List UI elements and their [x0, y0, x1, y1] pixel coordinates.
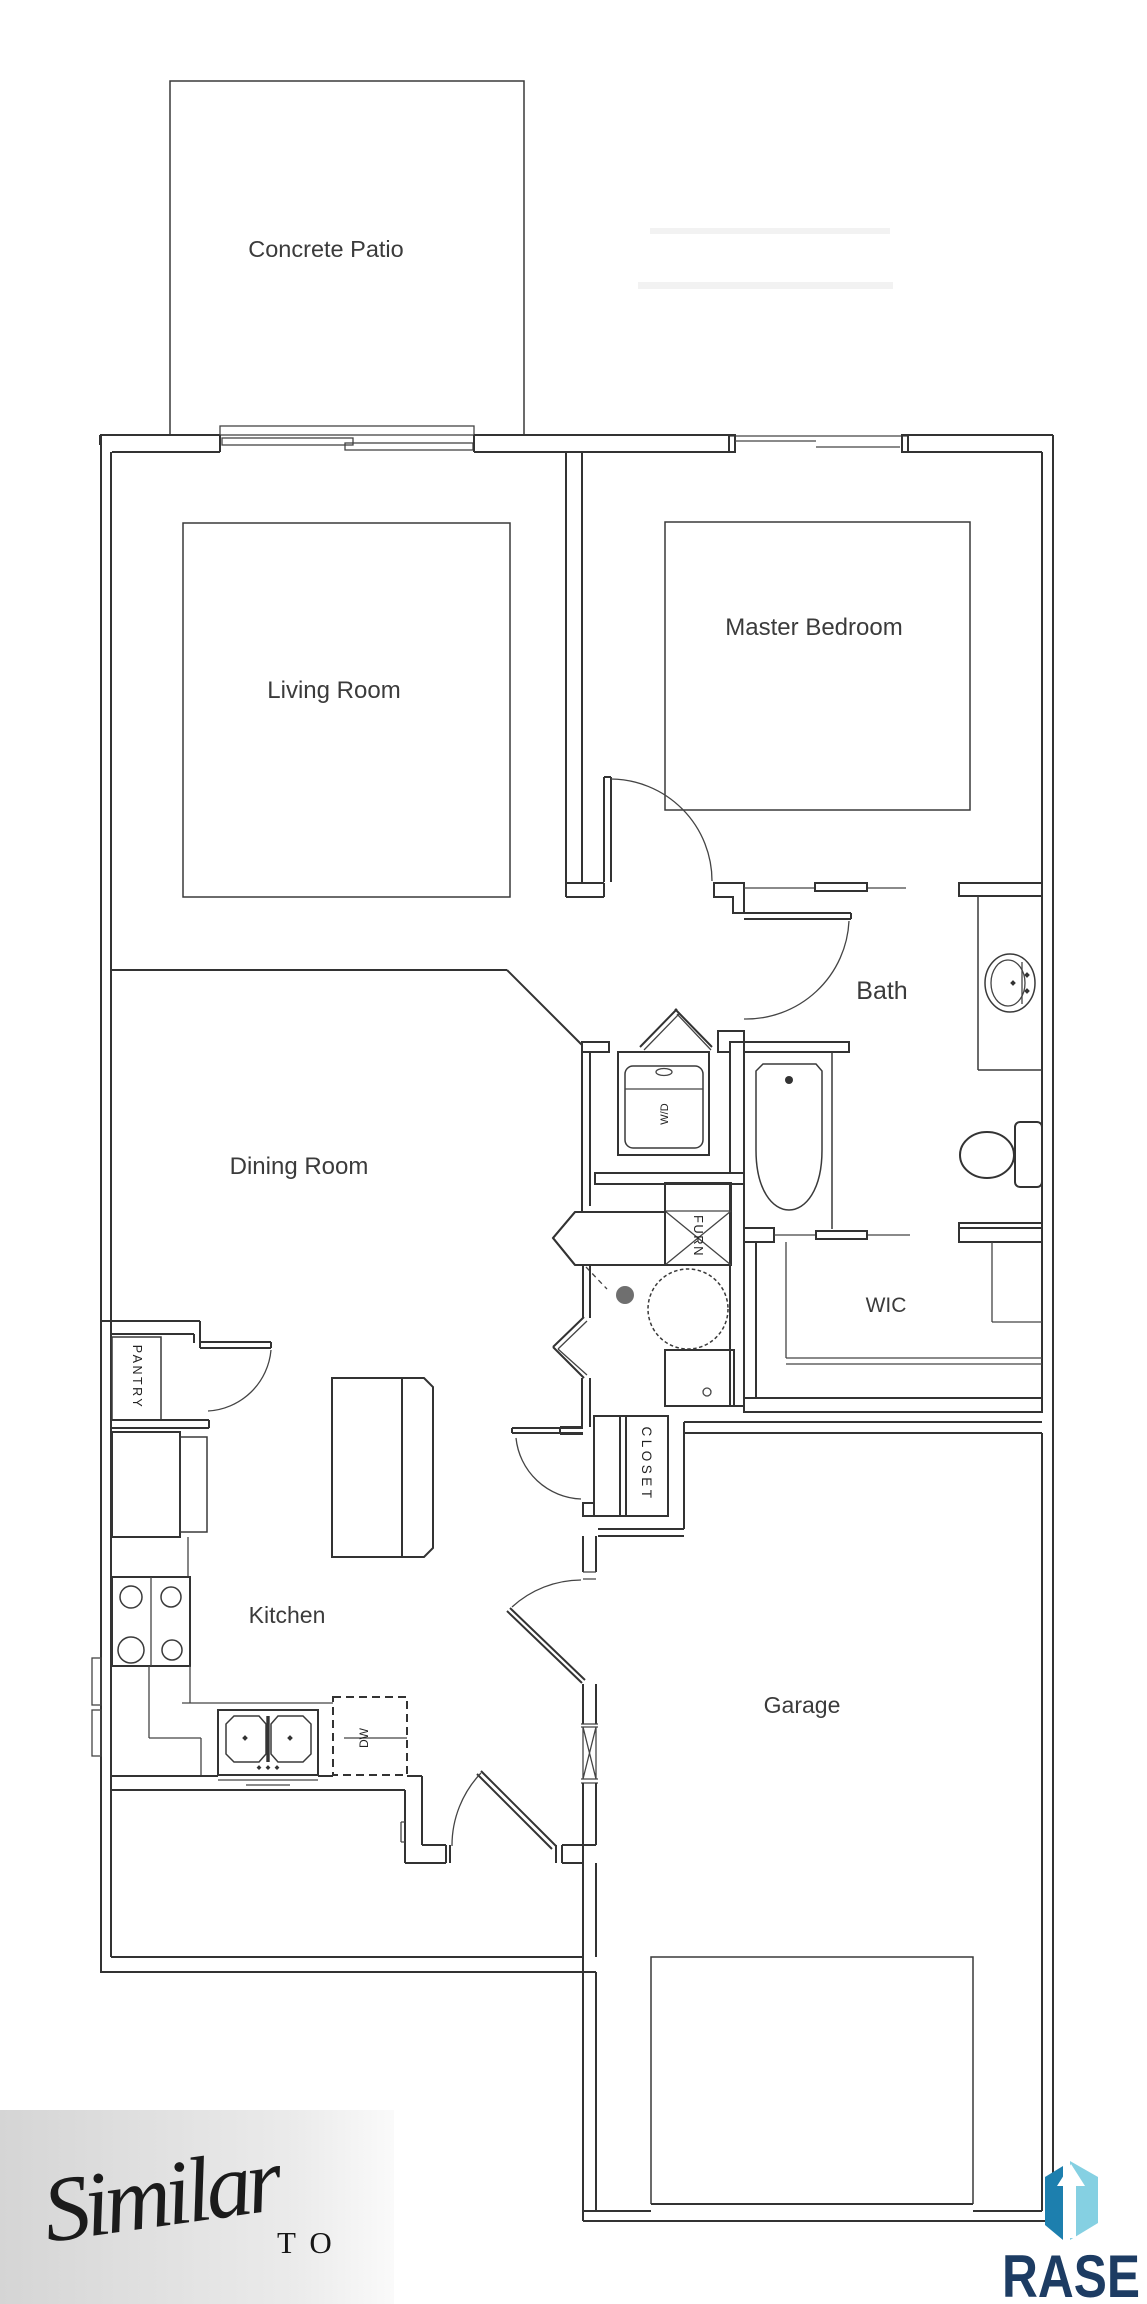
svg-text:CLOSET: CLOSET: [639, 1426, 654, 1501]
svg-text:FURN: FURN: [691, 1215, 706, 1257]
svg-text:WIC: WIC: [866, 1294, 907, 1317]
svg-text:RASE: RASE: [1002, 2243, 1140, 2304]
svg-text:Concrete Patio: Concrete Patio: [248, 236, 403, 262]
svg-text:Living Room: Living Room: [267, 677, 400, 704]
svg-text:Dining Room: Dining Room: [230, 1153, 369, 1180]
svg-text:TO: TO: [277, 2225, 346, 2260]
svg-text:Kitchen: Kitchen: [249, 1602, 326, 1628]
svg-text:DW: DW: [357, 1727, 371, 1748]
svg-text:Garage: Garage: [764, 1692, 841, 1718]
svg-text:Master Bedroom: Master Bedroom: [725, 614, 902, 641]
svg-text:Bath: Bath: [856, 977, 907, 1005]
svg-text:W/D: W/D: [659, 1103, 671, 1124]
svg-text:PANTRY: PANTRY: [130, 1345, 144, 1410]
